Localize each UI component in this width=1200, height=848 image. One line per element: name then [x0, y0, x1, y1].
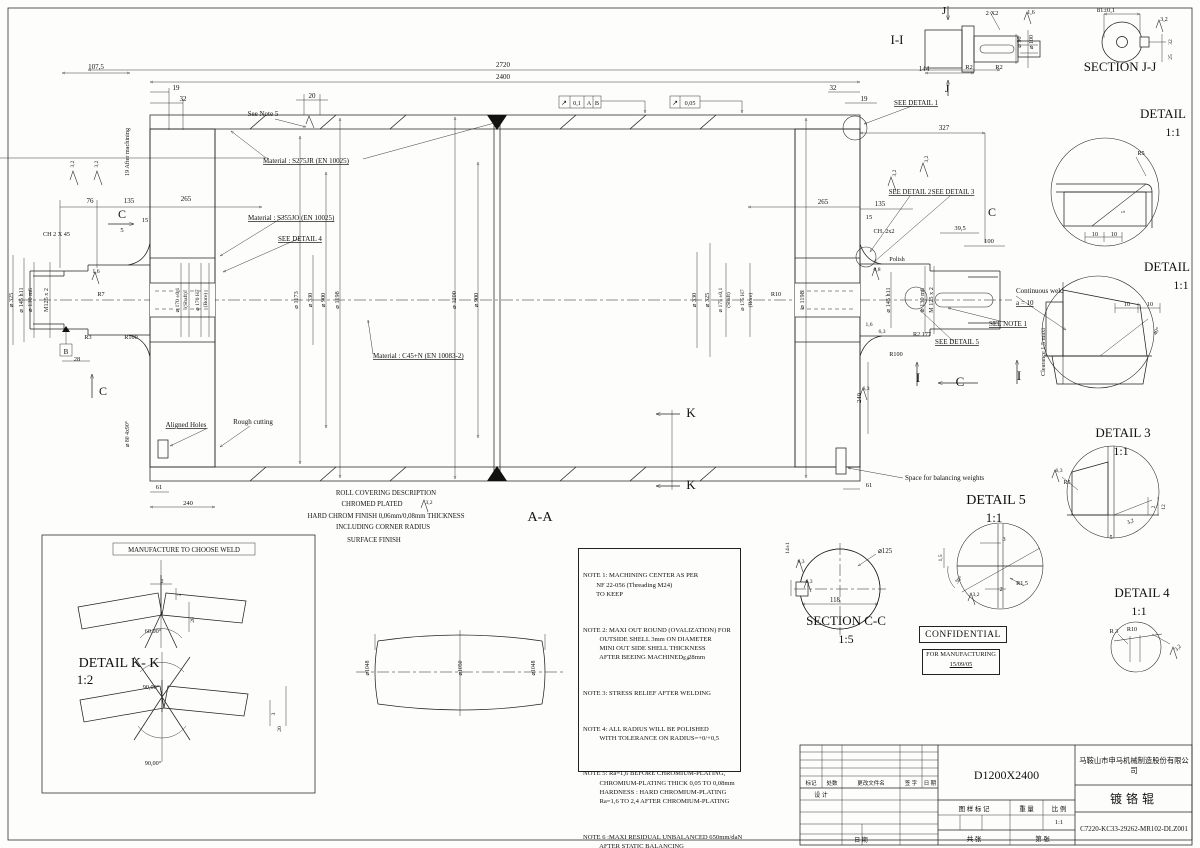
dim-label: 3: [1002, 536, 1005, 543]
dim-label: ⌀ 170 ±0,1: [175, 287, 181, 312]
section-mark-j: J: [945, 83, 950, 95]
dim-label: 81±0,1: [1097, 7, 1115, 14]
engineering-drawing-sheet: 107,52720240019322032191442 X21,6R2R2JJI…: [0, 0, 1200, 848]
view-label: DETAIL: [1140, 106, 1186, 121]
dim-label: ⌀ 1200: [451, 291, 458, 309]
dim-label: 32: [830, 84, 838, 92]
section-mark-i: I: [1017, 368, 1021, 383]
dim-label: 240: [856, 393, 863, 403]
dim-label: ⌀ 1173: [293, 291, 300, 308]
dim-label: 32: [180, 95, 188, 103]
dim-label: 10: [1147, 301, 1153, 308]
dim-label: 1:1: [1173, 278, 1188, 292]
dim-label: ⌀ 330: [691, 293, 698, 308]
dim-label: B: [595, 100, 599, 107]
dim-label: ⌀ 330: [307, 293, 314, 308]
dim-label: 265: [818, 198, 829, 206]
dim-label: (Shaft): [182, 292, 189, 308]
scale-label: 比 例: [1043, 801, 1075, 815]
dim-label: 20: [277, 726, 283, 732]
dim-label: 76: [87, 197, 95, 205]
dim-label: Rough cutting: [233, 418, 273, 426]
view-label: DETAIL 3: [1095, 425, 1150, 440]
dim-label: 90,00°: [143, 684, 160, 691]
dim-label: ⌀ 900: [473, 293, 480, 308]
dim-label: 6,3: [806, 579, 813, 585]
dim-label: 1,6: [866, 322, 873, 328]
col-count-label: 处数: [822, 777, 842, 788]
dim-label: 40°: [1152, 325, 1162, 336]
section-mark-k: K: [686, 405, 696, 420]
drawing-number: C7220-KC33-29262-MR102-DLZ001: [1076, 815, 1192, 842]
dim-label: ⌀ 145 h11: [18, 287, 25, 312]
dim-label: 3,2: [924, 155, 930, 162]
pattern-mark-label: 图 样 标 记: [938, 801, 1010, 815]
gdt-symbol: ↗: [672, 99, 678, 107]
dim-label: 6,3: [863, 386, 870, 392]
dim-label: ROLL COVERING DESCRIPTION: [336, 490, 436, 497]
dim-label: 1:2: [77, 672, 94, 687]
dim-label: 135: [875, 200, 886, 208]
section-mark-c: C: [99, 384, 107, 398]
dim-label: ⌀ 900: [320, 293, 327, 308]
dim-label: Material : S355JO (EN 10025): [248, 214, 335, 222]
dim-label: 61: [156, 484, 163, 491]
dim-label: See Note 5: [248, 110, 279, 118]
dim-label: 144: [919, 65, 930, 73]
dim-label: a = 10: [1016, 299, 1034, 307]
dim-label: ⌀ 175 H7: [740, 289, 746, 311]
dim-label: ⌀1050: [458, 660, 464, 675]
dim-label: 2400: [496, 73, 511, 81]
dim-label: R100: [889, 351, 902, 358]
dim-label: Continuous weld: [1016, 287, 1064, 295]
dim-label: M125 x 2: [43, 288, 50, 312]
col-file-label: 更改文件名: [842, 777, 900, 788]
dim-label: 6,3: [879, 329, 886, 335]
dim-label: 15: [866, 214, 873, 221]
dim-label: R5: [1137, 150, 1144, 157]
dim-label: 14±1: [785, 542, 791, 554]
dim-label: 10: [1111, 231, 1117, 238]
dim-label: 10: [1124, 301, 1130, 308]
dim-label: 3: [271, 712, 277, 715]
dim-label: 1,6: [1027, 10, 1035, 16]
company-name: 马鞍山市申马机械制造股份有限公司: [1076, 750, 1192, 782]
dim-label: 5: [120, 227, 123, 234]
dim-label: ⌀125: [878, 548, 893, 555]
dim-label: R100: [124, 334, 137, 341]
dim-label: ⌀ 145 h11: [885, 287, 892, 312]
view-label: DETAIL: [1144, 259, 1190, 274]
right-shaft-geometry: [843, 116, 1000, 356]
dim-label: 3: [177, 593, 183, 596]
dim-label: (Bore): [747, 293, 754, 308]
detail-4-view: [1111, 622, 1170, 672]
dim-label: 107,5: [88, 63, 104, 71]
dim-label: 1,6: [92, 269, 99, 275]
gdt-symbol: ↗: [561, 99, 567, 107]
dim-label: 2: [999, 586, 1002, 593]
dim-label: 3,2: [70, 160, 76, 167]
dim-label: ⌀ 170 H7: [195, 289, 201, 311]
detail-5-view: [944, 523, 1043, 609]
dim-label: 3,2: [1174, 644, 1183, 653]
model-designation: D1200X2400: [939, 762, 1074, 788]
dim-label: 5: [1109, 534, 1112, 541]
section-mark-c: C: [988, 205, 996, 219]
dim-label: 12: [1161, 504, 1167, 510]
datum-label: B: [64, 348, 69, 356]
roughness-icon: [70, 171, 78, 185]
dim-label: 0,1: [573, 100, 581, 107]
dim-label: 6,3: [798, 559, 805, 565]
dim-label: ⌀1048: [531, 660, 537, 675]
note-3: NOTE 3: STRESS RELIEF AFTER WELDING: [583, 689, 738, 698]
dim-label: R5: [1063, 480, 1070, 486]
dim-label: CHROMED PLATED: [342, 501, 403, 508]
view-label: DETAIL 5: [966, 493, 1025, 508]
part-name: 镀铬辊: [1076, 788, 1192, 809]
view-label: A-A: [528, 510, 554, 525]
dim-label: R2: [995, 64, 1003, 71]
confidential-stamp: CONFIDENTIAL: [919, 626, 1007, 643]
view-label: I-I: [891, 32, 904, 47]
dim-label: 25: [1168, 54, 1174, 60]
dim-label: R3: [84, 334, 91, 341]
dim-label: R 3: [1110, 628, 1119, 635]
view-label: SECTION J-J: [1084, 59, 1157, 74]
dim-label: 3,2: [94, 160, 100, 167]
roughness-icon: [920, 163, 928, 177]
col-date-label: 日 期: [922, 777, 938, 788]
dim-label: Material : S275JR (EN 10025): [263, 157, 350, 165]
dim-label: 1:1: [1131, 604, 1146, 618]
col-sign-label: 签 字: [900, 777, 922, 788]
dim-label: ⌀ 325: [704, 293, 711, 308]
section-jj-view: [1102, 14, 1166, 62]
view-label: DETAIL K- K: [79, 656, 160, 671]
note-1: NOTE 1: MACHINING CENTER AS PER NF 22-05…: [583, 571, 738, 599]
sheet-no-label: 第 张: [1010, 831, 1075, 845]
dim-label: Aligned Holes: [166, 421, 207, 429]
dim-label: ⌀ 80 4x90°: [124, 420, 131, 447]
view-label: DETAIL 4: [1114, 585, 1170, 600]
dim-label: 118: [830, 597, 841, 604]
notes-block: NOTE 1: MACHINING CENTER AS PER NF 22-05…: [578, 548, 741, 772]
dim-label: HARD CHROM FINISH 0,06mm/0,08mm THICKNES…: [308, 513, 465, 520]
dim-label: SEE DETAIL 4: [278, 235, 322, 243]
dim-label: A: [587, 100, 592, 107]
dim-label: R2: [965, 64, 973, 71]
dim-label: 0,8: [874, 267, 881, 273]
dim-label: 2: [1151, 505, 1157, 508]
dim-label: 3,2: [973, 592, 980, 598]
section-ii-view: [925, 6, 1040, 96]
dim-label: Space for balancing weights: [905, 474, 984, 482]
dim-label: 20: [190, 617, 196, 623]
dim-label: R1,5: [1016, 580, 1028, 587]
detail-3-view: [1062, 446, 1159, 538]
design-label: 设 计: [800, 788, 842, 800]
roughness-icon: [306, 116, 314, 128]
note-5: NOTE 5: Ra=1,6 BEFORE CHROMIUM-PLATING, …: [583, 769, 738, 806]
dim-label: 1:1: [1113, 444, 1128, 458]
section-mark-j: J: [942, 5, 947, 17]
dim-label: 61: [866, 482, 873, 489]
scale-value: 1:1: [1043, 815, 1075, 830]
dim-label: 39,5: [954, 225, 965, 232]
dim-label: 1:1: [1165, 125, 1180, 139]
dim-label: CH 2 X 45: [43, 231, 70, 238]
dim-label: 19: [861, 95, 869, 103]
dim-label: R7: [97, 291, 104, 298]
dim-label: 265: [181, 195, 192, 203]
dim-label: 90,00°: [145, 760, 162, 767]
dim-label: ⌀ 1198: [334, 291, 341, 308]
roughness-icon: [94, 171, 102, 185]
dim-label: 2720: [496, 61, 511, 69]
dim-label: 240: [183, 500, 193, 507]
dim-label: 3,2: [426, 500, 433, 506]
dim-label: 20: [309, 92, 317, 100]
dim-label: CH. 2x2: [874, 228, 895, 235]
dim-label: ⌀ 325: [8, 293, 15, 308]
section-mark-c: C: [956, 374, 965, 389]
view-label: SECTION C-C: [806, 613, 886, 628]
dim-label: SEE DETAIL 3: [932, 189, 975, 196]
date-label: 日 期: [842, 834, 880, 845]
weight-label: 重 量: [1010, 801, 1043, 815]
dim-label: SEE DETAIL 1: [894, 99, 938, 107]
dim-label: MANUFACTURE TO CHOOSE WELD: [128, 547, 240, 554]
note-4: NOTE 4: ALL RADIUS WILL BE POLISHED WITH…: [583, 725, 738, 743]
dim-label: Material : C45+N (EN 10083-2): [373, 352, 464, 360]
dim-label: 3,2: [1126, 518, 1135, 526]
dim-label: 30°: [954, 575, 964, 585]
dim-label: ⌀ 175 ±0,1: [718, 287, 724, 312]
dim-label: M 125 x 2: [928, 287, 935, 313]
note-2: NOTE 2: MAXI OUT ROUND (OVALIZATION) FOR…: [583, 626, 738, 663]
dim-label: 0,05: [685, 100, 696, 107]
dim-label: R10: [771, 291, 781, 298]
dim-label: ⌀1048: [365, 660, 371, 675]
dim-label: 1:5: [838, 632, 853, 646]
dim-label: 32: [1168, 39, 1174, 45]
dim-label: ⌀ 130 m6: [919, 288, 926, 312]
dim-label: 60,00°: [145, 628, 162, 635]
manufacturing-date: 15/09/05: [923, 660, 999, 670]
dim-label: 100: [984, 238, 994, 245]
dim-label: INCLUDING CORNER RADIUS: [336, 524, 430, 531]
note-6: NOTE 6 :MAXI RESIDUAL UNBALANCED 650mm/d…: [583, 833, 738, 848]
dim-label: 10: [1092, 231, 1098, 238]
section-mark-k: K: [686, 477, 696, 492]
dim-label: 1,5: [938, 554, 944, 561]
dim-label: 135: [124, 197, 135, 205]
dim-label: 1:1: [986, 510, 1003, 525]
for-manufacturing-stamp: FOR MANUFACTURING 15/09/05: [922, 649, 1000, 675]
dim-label: 19: [173, 84, 181, 92]
dim-label: Clearance 1,5 maxi: [1040, 328, 1047, 376]
section-mark-c: C: [118, 207, 126, 221]
dim-label: ⌀ 100: [1029, 35, 1035, 49]
dim-label: 28: [74, 356, 81, 363]
dim-label: 3,2: [892, 169, 898, 176]
dim-label: (Shaft): [725, 292, 732, 308]
dim-label: (Bore): [202, 293, 209, 308]
dim-label: SEE NOTE 1: [989, 320, 1028, 328]
dim-label: 327: [939, 124, 950, 132]
dim-label: SURFACE FINISH: [347, 537, 401, 544]
for-manufacturing-text: FOR MANUFACTURING: [923, 650, 999, 660]
dim-label: 6,3: [1056, 468, 1063, 474]
col-mark-label: 标记: [800, 777, 822, 788]
dim-label: 3,2: [1160, 17, 1168, 23]
dim-label: SEE DETAIL 5: [935, 338, 979, 346]
dim-label: ⌀ 1198: [799, 291, 806, 308]
dim-label: R2 177: [913, 331, 931, 338]
dim-label: 15: [142, 217, 149, 224]
dim-label: 19 After machining: [124, 128, 131, 176]
sheets-total-label: 共 张: [938, 831, 1010, 845]
dim-label: 2 X2: [986, 10, 999, 17]
dim-label: ⌀ 130 m6: [27, 288, 34, 312]
dim-label: Polish: [889, 256, 905, 263]
section-mark-i: I: [916, 370, 920, 385]
dim-label: SEE DETAIL 2: [889, 189, 932, 196]
dim-label: ⌀ 90: [1017, 36, 1023, 47]
dim-label: 2: [160, 578, 163, 585]
dim-label: R10: [1127, 626, 1137, 633]
dim-label: 5: [1121, 210, 1127, 213]
